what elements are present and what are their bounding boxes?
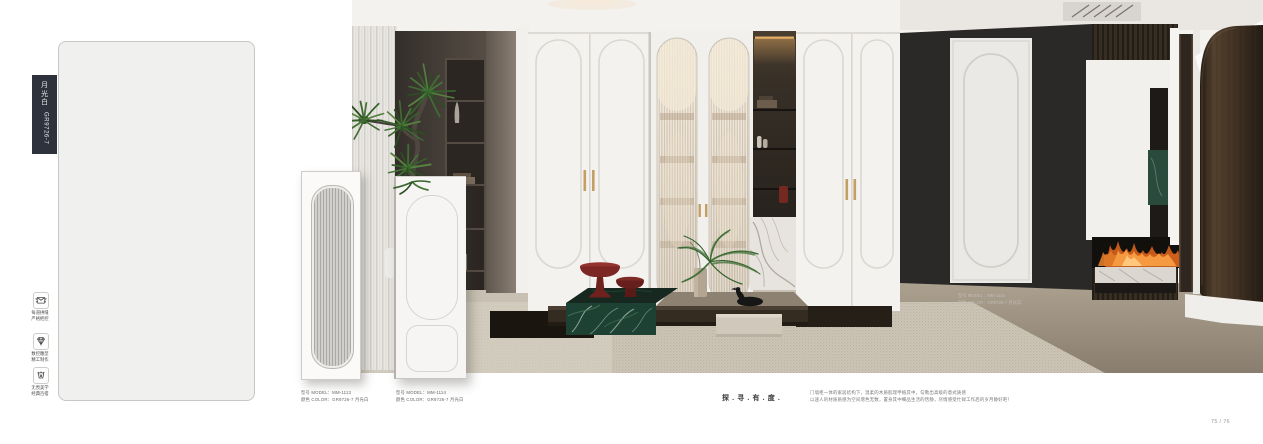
svg-text:型号 MODEL：MM-1115: 型号 MODEL：MM-1115 [958,292,1005,299]
svg-text:颜色 COLOR：GR9726-7 月光白: 颜色 COLOR：GR9726-7 月光白 [958,299,1021,306]
